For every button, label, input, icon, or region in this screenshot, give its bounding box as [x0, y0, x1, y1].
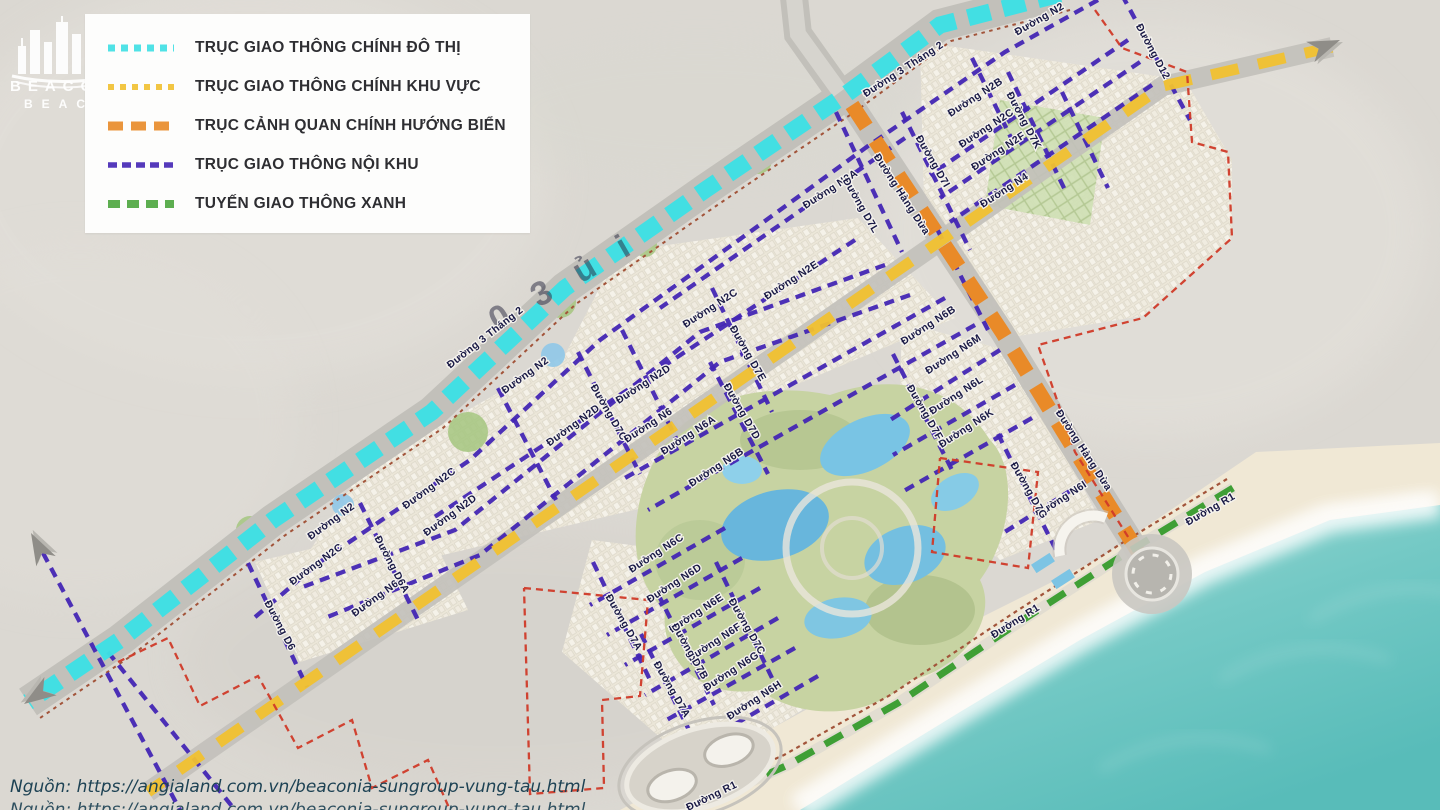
- source-caption: Nguồn: https://angialand.com.vn/beaconia…: [10, 776, 585, 810]
- legend-item: TRỤC CẢNH QUAN CHÍNH HƯỚNG BIỂN: [105, 106, 506, 145]
- source-url: Nguồn: https://angialand.com.vn/beaconia…: [10, 776, 585, 799]
- legend-label: TUYẾN GIAO THÔNG XANH: [195, 195, 406, 213]
- legend-item: TRỤC GIAO THÔNG CHÍNH ĐÔ THỊ: [105, 28, 506, 67]
- legend-label: TRỤC GIAO THÔNG NỘI KHU: [195, 156, 419, 174]
- legend-swatch-icon: [105, 41, 177, 55]
- legend-label: TRỤC GIAO THÔNG CHÍNH KHU VỰC: [195, 78, 481, 96]
- legend-swatch-icon: [105, 119, 177, 133]
- legend-label: TRỤC CẢNH QUAN CHÍNH HƯỚNG BIỂN: [195, 117, 506, 135]
- legend-label: TRỤC GIAO THÔNG CHÍNH ĐÔ THỊ: [195, 39, 461, 57]
- source-url-clipped: Nguồn: https://angialand.com.vn/beaconia…: [10, 799, 585, 810]
- legend-item: TRỤC GIAO THÔNG CHÍNH KHU VỰC: [105, 67, 506, 106]
- legend-swatch-icon: [105, 80, 177, 94]
- legend-item: TRỤC GIAO THÔNG NỘI KHU: [105, 145, 506, 184]
- legend-item: TUYẾN GIAO THÔNG XANH: [105, 184, 506, 223]
- masterplan-map: 0 3 ủ iĐường 3 Tháng 2Đường 3 Tháng 2Đườ…: [0, 0, 1440, 810]
- legend-swatch-icon: [105, 158, 177, 172]
- legend-swatch-icon: [105, 197, 177, 211]
- legend: TRỤC GIAO THÔNG CHÍNH ĐÔ THỊTRỤC GIAO TH…: [85, 14, 530, 233]
